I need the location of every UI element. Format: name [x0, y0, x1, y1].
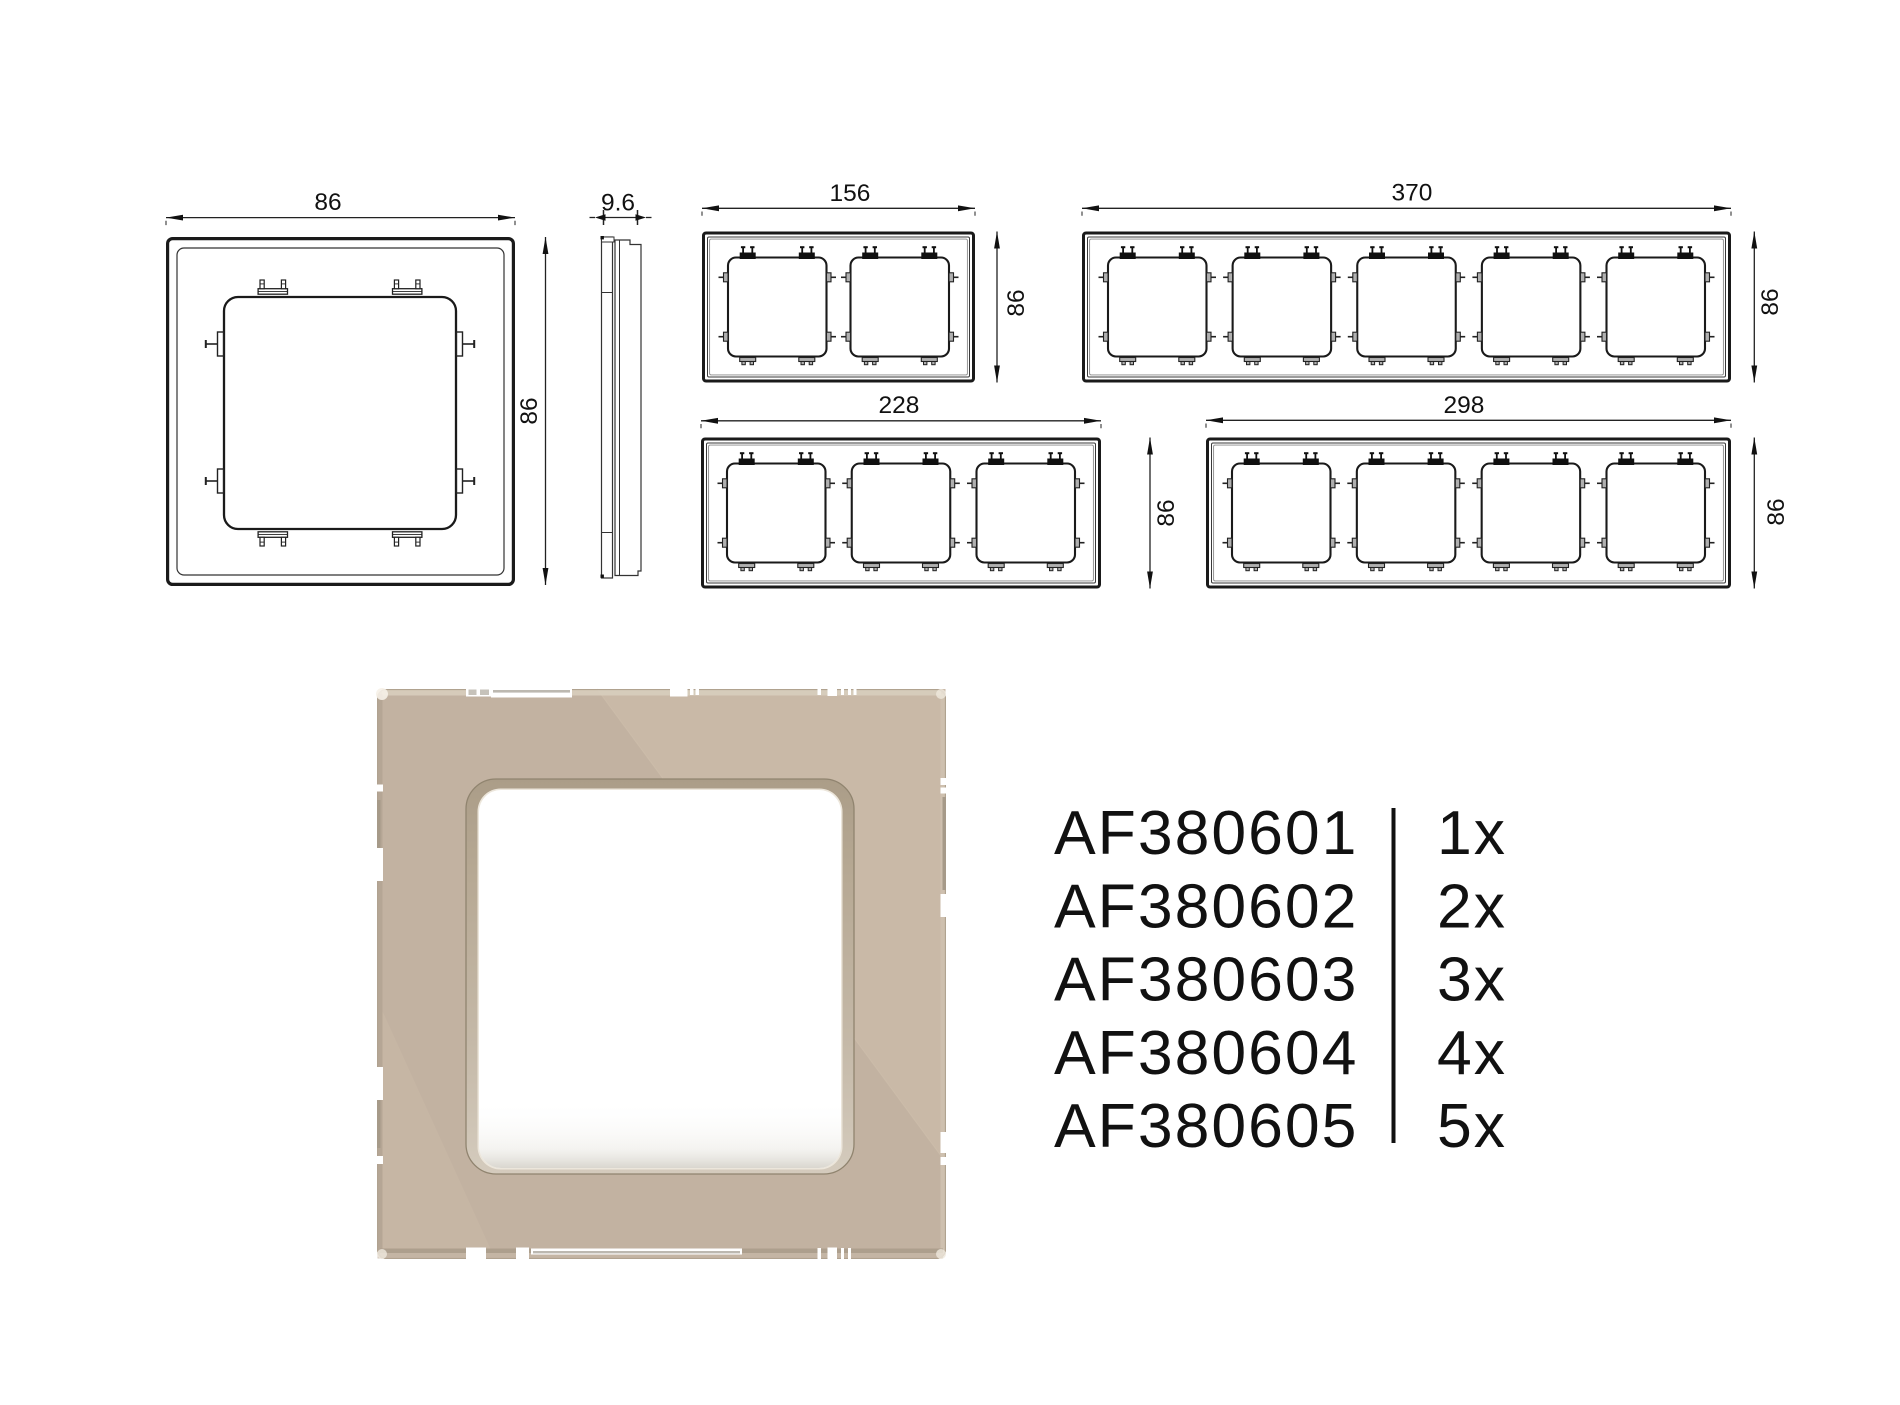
svg-text:370: 370 [1392, 180, 1433, 207]
svg-text:86: 86 [1757, 288, 1784, 315]
svg-text:298: 298 [1444, 392, 1485, 419]
svg-text:5x: 5x [1437, 1091, 1507, 1161]
svg-text:AF380602: AF380602 [1054, 871, 1358, 941]
svg-text:9.6: 9.6 [601, 190, 635, 217]
svg-text:AF380601: AF380601 [1054, 798, 1358, 868]
svg-text:AF380603: AF380603 [1054, 945, 1358, 1015]
svg-text:4x: 4x [1437, 1018, 1507, 1088]
svg-text:86: 86 [314, 189, 341, 216]
svg-text:2x: 2x [1437, 871, 1507, 941]
svg-text:86: 86 [1153, 499, 1180, 526]
svg-text:228: 228 [879, 392, 920, 419]
svg-text:86: 86 [1003, 289, 1030, 316]
svg-text:AF380605: AF380605 [1054, 1091, 1358, 1161]
svg-text:3x: 3x [1437, 945, 1507, 1015]
svg-text:86: 86 [516, 397, 543, 424]
svg-text:86: 86 [1763, 498, 1790, 525]
svg-text:AF380604: AF380604 [1054, 1018, 1358, 1088]
svg-text:156: 156 [830, 180, 871, 207]
svg-text:1x: 1x [1437, 798, 1507, 868]
